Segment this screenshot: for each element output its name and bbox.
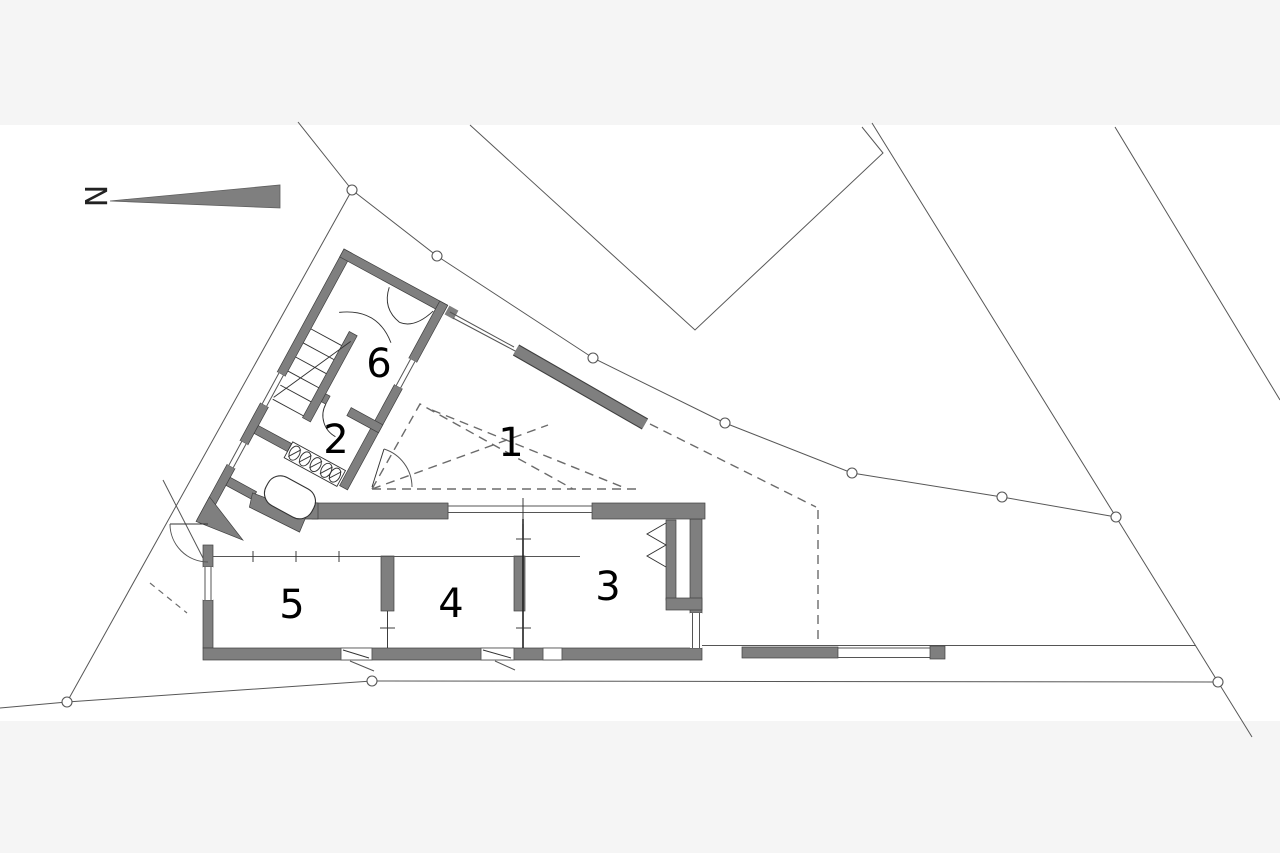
stair-wall bbox=[303, 332, 358, 422]
floor-plan-drawing: N bbox=[0, 0, 1280, 853]
top-margin-band bbox=[0, 0, 1280, 125]
room5-room4-pier bbox=[381, 556, 394, 611]
gate-post bbox=[930, 646, 945, 659]
west-wall-window bbox=[203, 567, 213, 600]
north-arrow-icon bbox=[110, 185, 280, 208]
building-upper-wing bbox=[196, 249, 448, 578]
north-arrow: N bbox=[77, 185, 280, 208]
closet-zigzag-symbol bbox=[647, 523, 666, 567]
room-label-4: 4 bbox=[438, 581, 463, 627]
neighbor-building-outline bbox=[470, 125, 883, 330]
room-label-2: 2 bbox=[323, 417, 348, 463]
room-label-5: 5 bbox=[279, 582, 304, 628]
boundary-vertex-markers bbox=[62, 185, 1223, 707]
floor-plan-canvas: N bbox=[0, 0, 1280, 853]
site-boundary bbox=[0, 122, 1280, 737]
bottom-margin-band bbox=[0, 721, 1280, 853]
room-label-1: 1 bbox=[498, 420, 523, 466]
closet-wall bbox=[666, 520, 676, 600]
perimeter-fence bbox=[702, 646, 1196, 660]
closet-wall-bottom bbox=[666, 598, 702, 610]
east-wall-window bbox=[690, 613, 702, 648]
north-label: N bbox=[77, 185, 112, 207]
room-label-6: 6 bbox=[366, 341, 391, 387]
porch-step-dashed bbox=[150, 583, 187, 613]
room-label-3: 3 bbox=[595, 564, 620, 610]
